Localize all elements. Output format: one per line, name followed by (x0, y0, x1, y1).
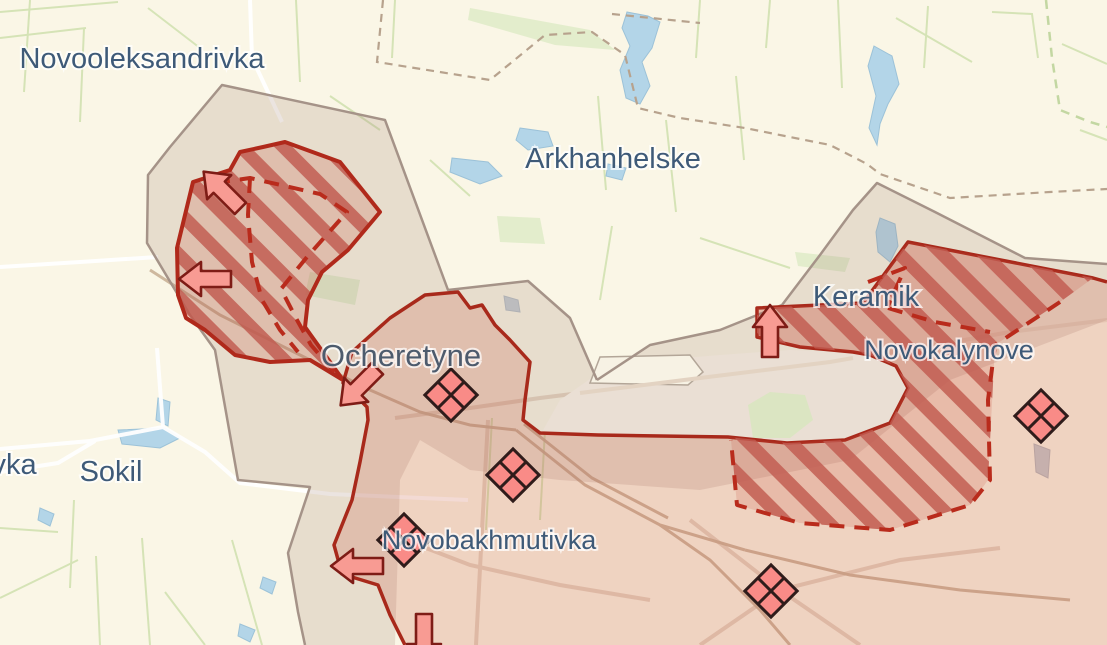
town-label-novobakhmutivka: Novobakhmutivka (382, 525, 598, 555)
town-label-sokil: Sokil (80, 456, 143, 488)
town-label-novooleksandrivka: Novooleksandrivka (19, 43, 265, 75)
map-canvas[interactable]: Novooleksandrivka Arkhanhelske Ocheretyn… (0, 0, 1107, 645)
war-map[interactable]: Novooleksandrivka Arkhanhelske Ocheretyn… (0, 0, 1107, 645)
town-label-arkhanhelske: Arkhanhelske (525, 143, 701, 175)
town-label-partial-vka: vka (0, 449, 37, 481)
town-label-ocheretyne: Ocheretyne (321, 338, 481, 373)
town-label-novokalynove: Novokalynove (864, 335, 1034, 365)
town-label-keramik: Keramik (813, 281, 920, 313)
